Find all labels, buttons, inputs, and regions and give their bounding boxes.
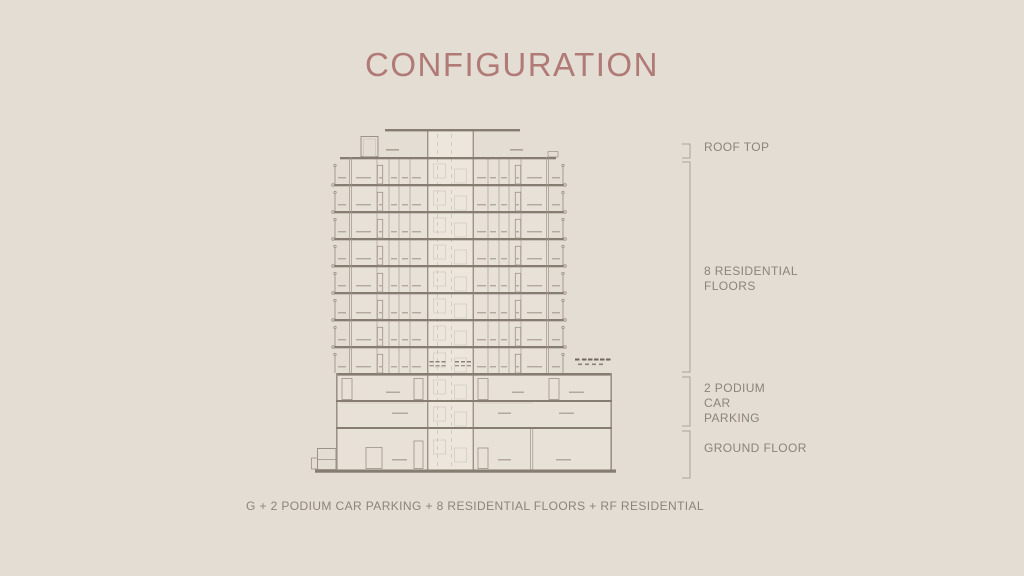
annotation-brackets [682, 144, 690, 478]
slide: CONFIGURATION ROOF TOP 8 RESIDENTIAL FLO… [0, 0, 1024, 576]
label-podium-car-parking: 2 PODIUM CAR PARKING [704, 381, 790, 426]
label-roof-top: ROOF TOP [704, 140, 769, 155]
bracket-residential-floors [682, 162, 690, 372]
bracket-podium-car-parking [682, 377, 690, 426]
bracket-roof-top [682, 144, 690, 158]
building-section-drawing [312, 129, 617, 473]
label-residential-floors: 8 RESIDENTIAL FLOORS [704, 264, 800, 294]
configuration-summary-caption: G + 2 PODIUM CAR PARKING + 8 RESIDENTIAL… [246, 499, 704, 513]
building-section-diagram [0, 0, 1024, 576]
bracket-ground-floor [682, 431, 690, 478]
label-ground-floor: GROUND FLOOR [704, 441, 807, 456]
